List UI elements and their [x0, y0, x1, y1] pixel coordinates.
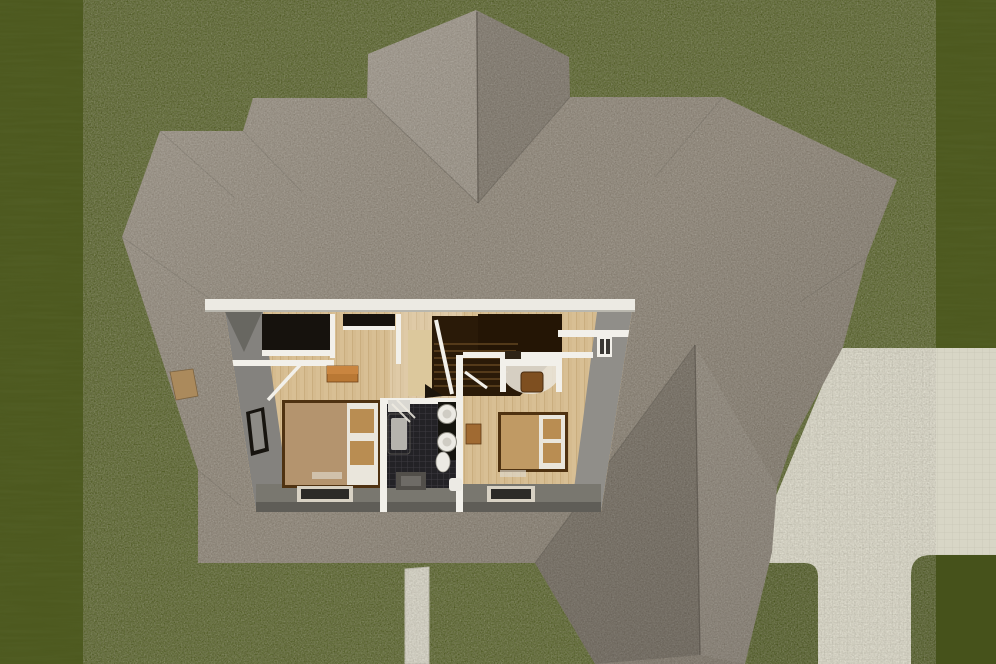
bath-left-wall — [380, 398, 387, 512]
house-overhead-render: Overhead 3D dollhouse view of a house up… — [0, 0, 996, 664]
rug-center — [491, 489, 531, 499]
bath-fixture-small — [449, 478, 462, 491]
dresser — [327, 366, 358, 382]
window-pane-right — [606, 339, 610, 354]
pillow-1 — [543, 419, 561, 439]
render-viewport: Overhead 3D dollhouse view of a house up… — [0, 0, 996, 664]
bedroom-top-wall — [228, 360, 334, 366]
dresser-top — [327, 366, 358, 374]
stair-landing — [408, 330, 432, 396]
closet2-front-wall — [343, 326, 395, 330]
desk-top — [500, 358, 562, 366]
desk-right-side — [556, 358, 562, 392]
closet-front-wall — [262, 350, 334, 356]
floor-vent-right — [500, 470, 526, 477]
pillow-2 — [543, 443, 561, 463]
cutaway-trim — [205, 299, 635, 312]
pillow-1 — [350, 409, 374, 433]
desk-chair — [521, 372, 543, 392]
rug-center — [301, 489, 349, 499]
right-bed — [498, 412, 568, 472]
upper-floor-interior — [225, 312, 635, 512]
desk-item — [505, 351, 521, 359]
side-table — [466, 424, 481, 444]
gable-wall-window — [597, 336, 612, 357]
window-pane-left — [600, 339, 604, 354]
bath-mat-inner — [401, 476, 421, 486]
closet-opening-dark — [262, 314, 332, 350]
walkway — [405, 567, 429, 664]
stair-upper-dark — [478, 314, 562, 356]
closet-side-wall — [330, 314, 335, 358]
right-rug — [487, 486, 535, 502]
hall-wall-stub — [396, 314, 401, 364]
toilet — [436, 452, 450, 472]
bathtub-inner — [391, 418, 407, 450]
right-room-back-wall — [558, 330, 632, 337]
bed-blanket — [501, 415, 539, 469]
bottom-wall-band-dark — [256, 502, 601, 512]
floor-vent-left — [312, 472, 342, 479]
trim-shadow — [205, 310, 635, 312]
sink-2-basin — [443, 438, 452, 447]
closet2-opening-dark — [343, 314, 395, 326]
desk-left-side — [500, 358, 506, 392]
right-room-top-wall — [463, 352, 593, 358]
grass-island-right — [911, 555, 996, 664]
sink-1-basin — [443, 410, 452, 419]
pillow-2 — [350, 441, 374, 465]
left-rug — [297, 486, 353, 502]
